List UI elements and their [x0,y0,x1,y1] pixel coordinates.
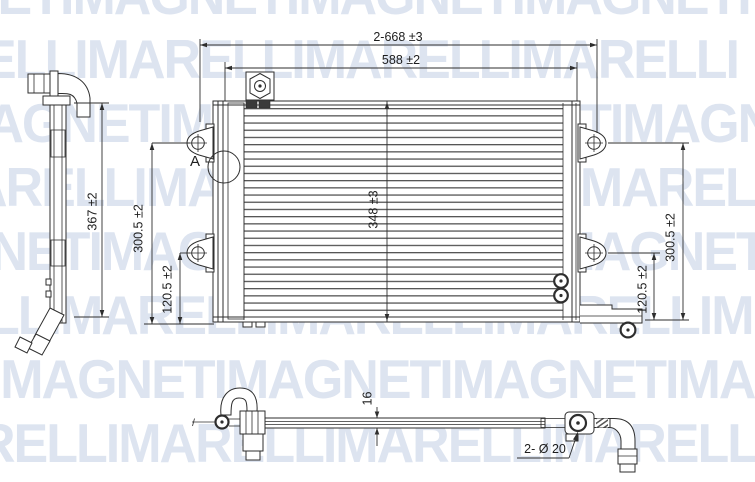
bottom-left-fitting [192,388,265,460]
left-bracket-upper [187,124,214,162]
bottom-view [192,388,637,472]
foot-tab [243,322,252,327]
drawing-sheet: NETIMAGNETIMAGNETIMAGNETIELLIMARELLIMARE… [0,0,755,482]
top-flange [43,96,70,105]
side-view [15,71,90,355]
bottom-right-bracket [580,305,642,337]
top-port-fitting [246,72,274,108]
core-fins [244,106,563,317]
right-bracket-upper [578,124,606,162]
left-bracket-lower [187,234,214,272]
side-profile [50,105,66,323]
technical-drawing [0,0,755,482]
front-view [187,72,642,337]
bottom-right-fitting [541,412,637,472]
bottom-angled-fitting [15,308,64,355]
foot-tab [256,322,265,327]
top-profile-bar [262,418,545,428]
right-bracket-lower [578,234,606,272]
